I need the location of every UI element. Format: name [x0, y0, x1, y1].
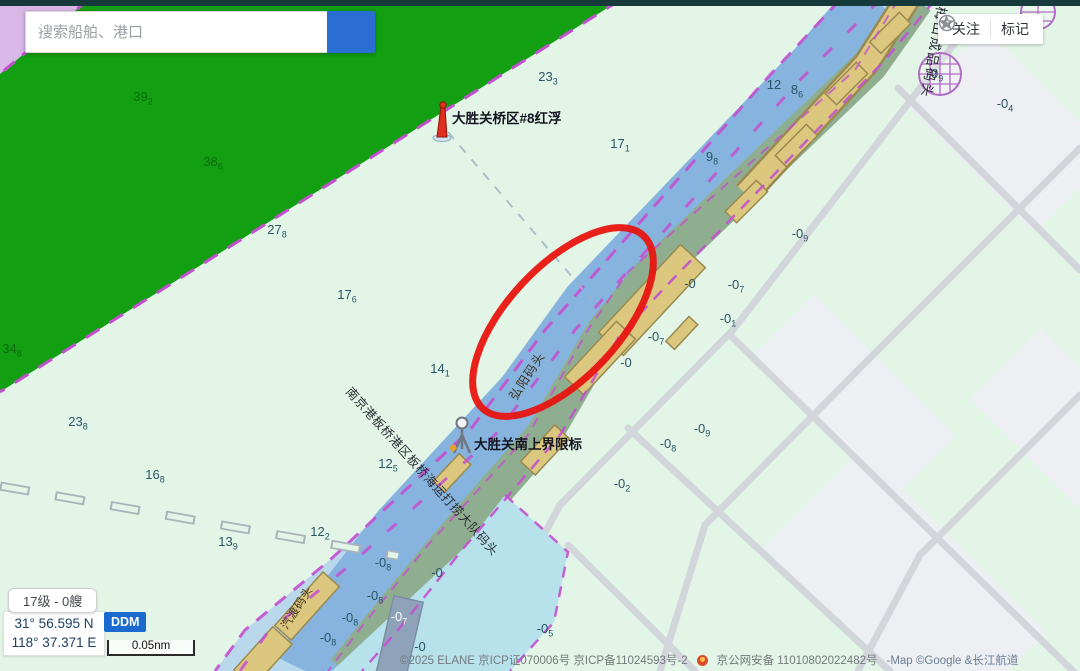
- depth-sounding: -0: [431, 565, 443, 580]
- footer-credits: ©2025 ELANE 京ICP证070006号 京ICP备11024593号-…: [400, 652, 1018, 668]
- buoy-label: 大胜关桥区#8红浮: [452, 110, 562, 126]
- security-record-text: 京公网安备 11010802022482号: [717, 652, 878, 668]
- beacon-label: 大胜关南上界限标: [474, 436, 582, 452]
- ship-tracking-app: 3923863482782331286171981761412381251681…: [0, 0, 1080, 671]
- nautical-chart-map[interactable]: 3923863482782331286171981761412381251681…: [0, 0, 1080, 671]
- mark-button[interactable]: 标记: [991, 14, 1039, 44]
- copyright-text: ©2025 ELANE 京ICP证070006号 京ICP备11024593号-…: [400, 652, 688, 668]
- coordinate-format-button[interactable]: DDM: [104, 612, 146, 632]
- magnifier-icon: [25, 11, 47, 33]
- search-bar: [25, 11, 375, 53]
- depth-sounding: -0: [684, 276, 696, 291]
- zoom-level-badge: 17级 - 0艘: [8, 588, 97, 613]
- police-badge-icon: [697, 655, 708, 666]
- follow-label: 关注: [952, 19, 980, 39]
- cursor-coordinates: 31° 56.595 N 118° 37.371 E: [3, 611, 105, 656]
- map-scale-bar: 0.05nm: [107, 640, 195, 656]
- mark-label: 标记: [1001, 19, 1029, 39]
- depth-sounding: 12: [767, 77, 781, 92]
- map-credit-text: -Map ©Google &长江航道: [887, 652, 1019, 668]
- tag-icon: [938, 14, 956, 32]
- search-input[interactable]: [25, 11, 327, 53]
- longitude-value: 118° 37.371 E: [4, 633, 104, 652]
- search-button[interactable]: [327, 11, 375, 53]
- map-toolbar: 关注 标记: [938, 14, 1043, 44]
- depth-sounding: -0: [620, 355, 632, 370]
- latitude-value: 31° 56.595 N: [4, 614, 104, 633]
- top-edge-strip: [0, 0, 1080, 6]
